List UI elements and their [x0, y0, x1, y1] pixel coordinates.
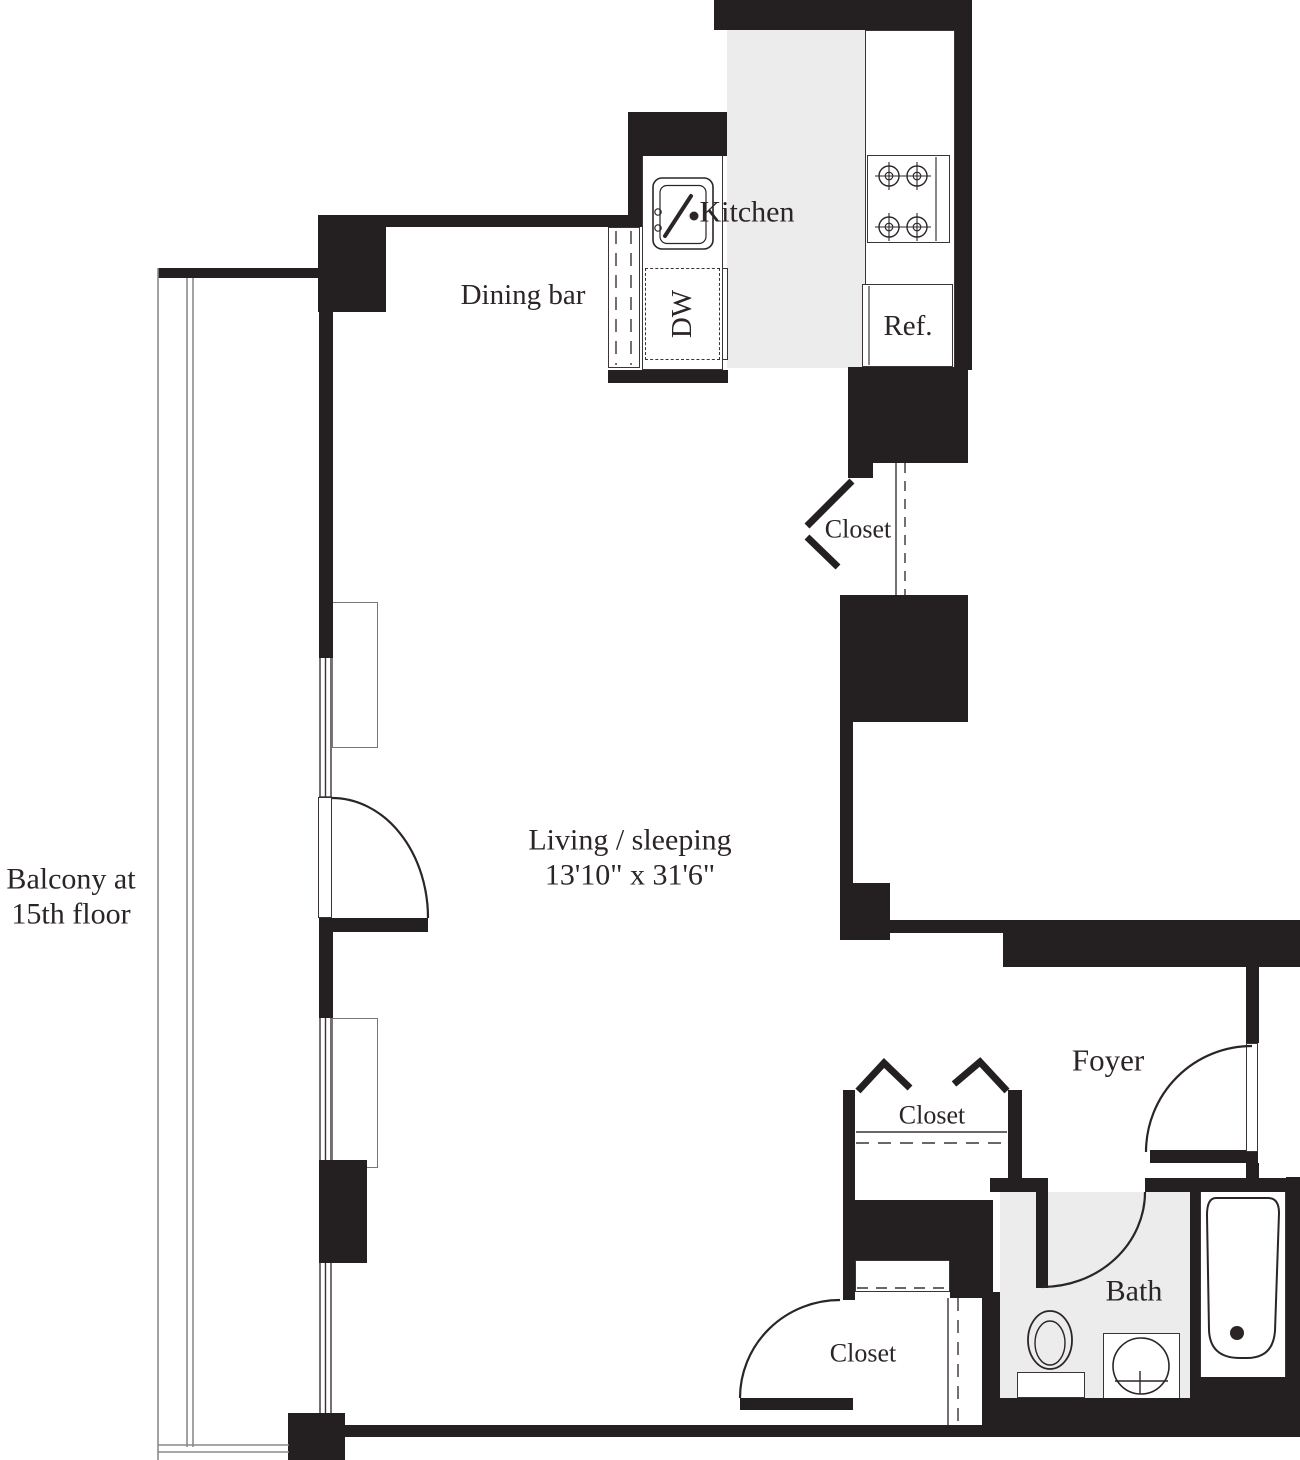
bifold-door-icon: [807, 481, 1007, 1091]
room-label-living: Living / sleeping 13'10" x 31'6": [528, 823, 731, 894]
bath-basin-icon: [1113, 1338, 1169, 1394]
entry-door-arc: [1146, 1046, 1252, 1152]
room-label-closet-living: Closet: [830, 1339, 896, 1370]
room-label-closet-kitchen: Closet: [825, 515, 891, 546]
living-dimensions: 13'10" x 31'6": [528, 858, 731, 893]
window: [319, 658, 332, 1413]
counter-dashes: [616, 231, 631, 365]
bathtub-icon: [1207, 1198, 1279, 1358]
balcony-railing: [158, 268, 289, 1460]
stove-burners-icon: [875, 162, 931, 241]
room-label-dining-bar: Dining bar: [461, 278, 586, 312]
room-label-closet-foyer: Closet: [899, 1101, 965, 1132]
balcony-label-line2: 15th floor: [6, 897, 135, 932]
toilet-icon: [1028, 1311, 1072, 1369]
living-closet-door-arc: [740, 1300, 840, 1398]
plan-linework: [0, 0, 1300, 1460]
living-label: Living / sleeping: [528, 823, 731, 858]
closet-rod-lines: [856, 463, 1007, 1425]
balcony-door-arc: [332, 798, 428, 918]
room-label-bath: Bath: [1106, 1273, 1163, 1308]
room-label-balcony: Balcony at 15th floor: [6, 862, 135, 933]
refrigerator-label: Ref.: [883, 309, 932, 343]
balcony-label-line1: Balcony at: [6, 862, 135, 897]
room-label-foyer: Foyer: [1072, 1043, 1144, 1080]
dishwasher-label: DW: [665, 290, 699, 338]
room-label-kitchen: Kitchen: [700, 194, 795, 229]
floor-plan: Balcony at 15th floor Dining bar Kitchen…: [0, 0, 1300, 1460]
